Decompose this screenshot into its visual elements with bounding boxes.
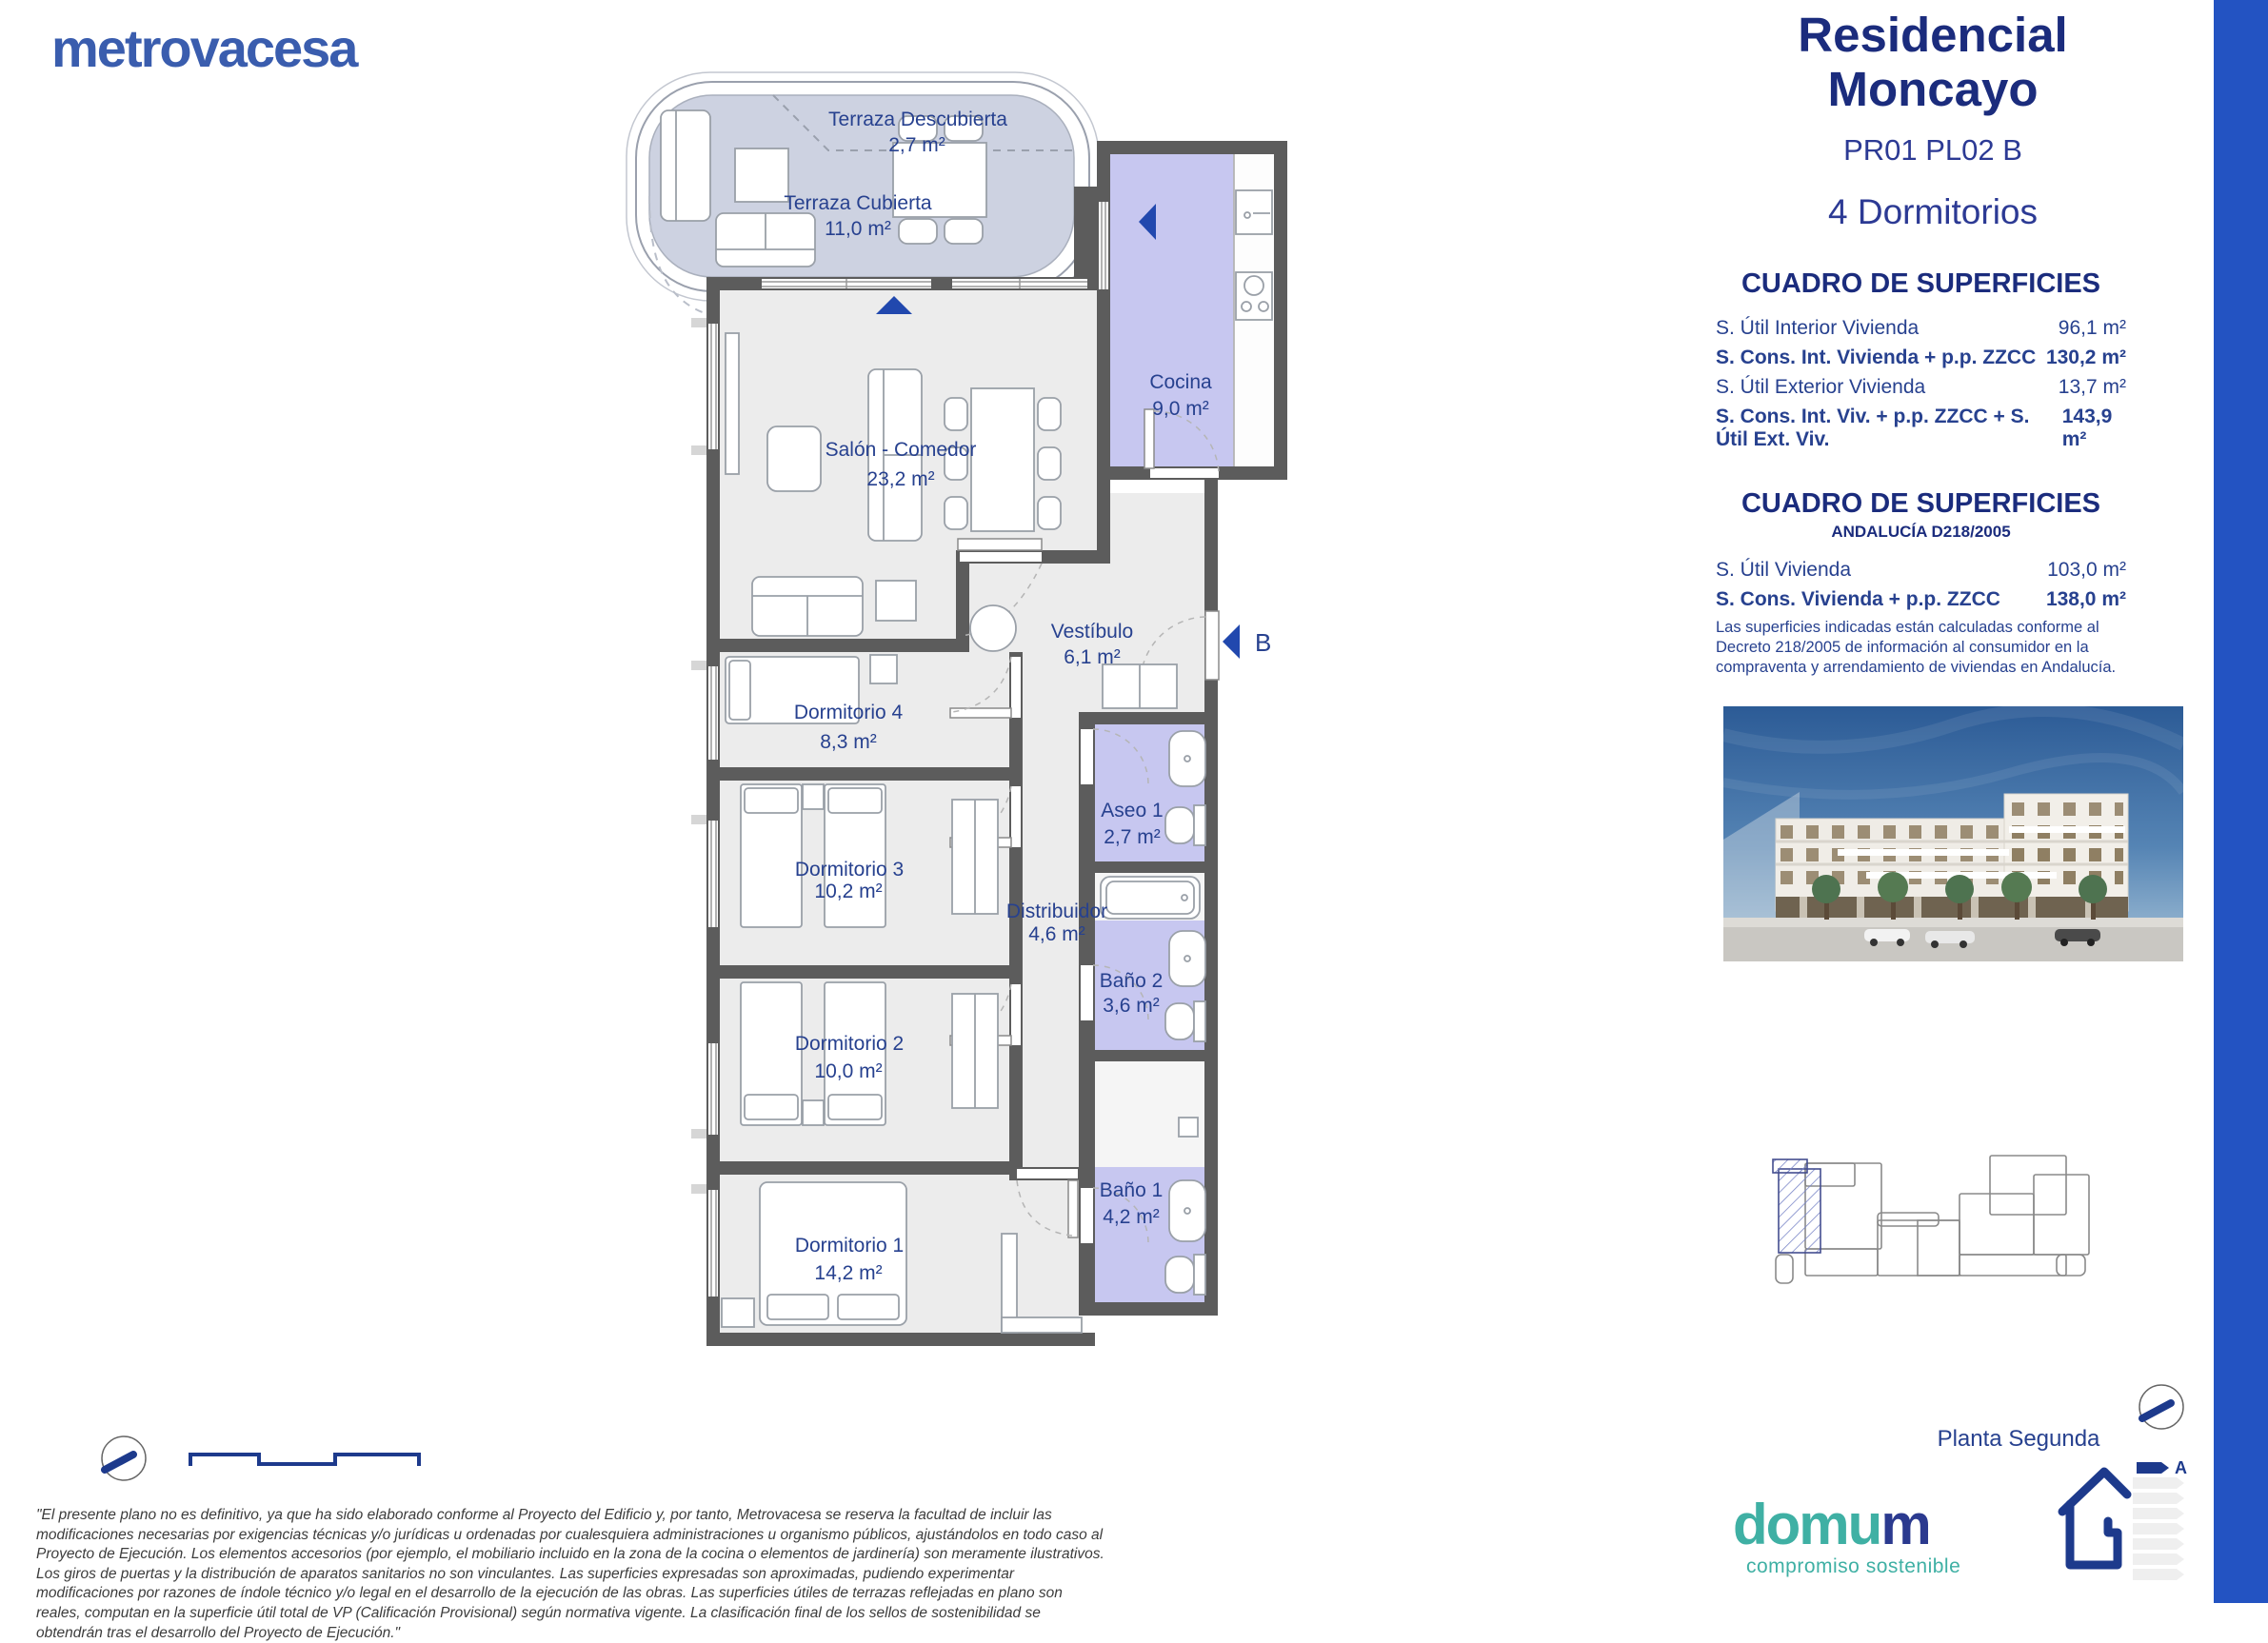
room-label: Cocina xyxy=(1149,371,1212,393)
room-label: Terraza Cubierta xyxy=(784,192,932,214)
energy-rating-arrow xyxy=(2137,1462,2169,1474)
energy-rating-letter: A xyxy=(2175,1460,2187,1477)
pillow xyxy=(828,788,882,813)
kitchen-window xyxy=(1099,202,1108,289)
facade-window xyxy=(691,1043,718,1138)
room-area: 2,7 m² xyxy=(888,134,945,156)
pillow xyxy=(745,1095,798,1119)
room-label: Terraza Descubierta xyxy=(828,109,1007,130)
room-label: Dormitorio 4 xyxy=(794,702,904,723)
closet-partition xyxy=(1002,1317,1082,1333)
terrace-chair xyxy=(899,219,937,244)
toilet-tank xyxy=(1194,1255,1205,1295)
table2-note: Las superficies indicadas están calculad… xyxy=(1716,618,2126,678)
sink xyxy=(1169,931,1205,986)
terrace-chair xyxy=(945,219,983,244)
room-area: 3,6 m² xyxy=(1103,995,1160,1017)
sidewalk xyxy=(1723,918,2183,927)
dining-chair xyxy=(945,497,967,529)
dining-chair xyxy=(1038,497,1061,529)
title-line2: Moncayo xyxy=(1714,62,2152,116)
room-area: 9,0 m² xyxy=(1152,398,1209,420)
keyplan-unit-highlight xyxy=(1773,1159,1820,1253)
room-area: 10,2 m² xyxy=(814,881,882,902)
fridge xyxy=(1236,190,1272,234)
surface-tables: CUADRO DE SUPERFICIES S. Útil Interior V… xyxy=(1716,268,2126,678)
compass-icon xyxy=(2137,1382,2186,1432)
room-area: 4,6 m² xyxy=(1028,923,1085,945)
pillow xyxy=(767,1295,828,1319)
row-label: S. Útil Vivienda xyxy=(1716,559,1851,582)
energy-bars xyxy=(2133,1477,2184,1580)
terrace-slider-window xyxy=(762,279,931,288)
room-area: 4,2 m² xyxy=(1103,1206,1160,1228)
armchair xyxy=(767,426,821,491)
unit-type: 4 Dormitorios xyxy=(1714,192,2152,232)
room-area: 8,3 m² xyxy=(820,731,877,753)
unit-code: PR01 PL02 B xyxy=(1714,133,2152,168)
room-label: Dormitorio 1 xyxy=(795,1235,904,1257)
toilet-tank xyxy=(1194,805,1205,845)
sink xyxy=(1169,731,1205,786)
bath1-entry-strip xyxy=(1095,1061,1204,1167)
table-row: S. Útil Exterior Vivienda 13,7 m² xyxy=(1716,372,2126,402)
page-title: Residencial Moncayo xyxy=(1714,8,2152,116)
hob xyxy=(1236,272,1272,320)
toilet xyxy=(1165,807,1194,843)
room-label: Dormitorio 3 xyxy=(795,859,904,881)
accent-bar xyxy=(2214,0,2268,1603)
row-value: 103,0 m² xyxy=(2047,559,2126,582)
row-label: S. Cons. Int. Vivienda + p.p. ZZCC xyxy=(1716,346,2036,369)
row-label: S. Cons. Vivienda + p.p. ZZCC xyxy=(1716,588,2000,611)
dining-chair xyxy=(945,398,967,430)
table-row: S. Cons. Vivienda + p.p. ZZCC 138,0 m² xyxy=(1716,584,2126,614)
toilet xyxy=(1165,1003,1194,1039)
floor-caption: Planta Segunda xyxy=(1866,1426,2171,1453)
row-value: 130,2 m² xyxy=(2046,346,2126,369)
domum-tagline: compromiso sostenible xyxy=(1746,1555,2019,1578)
dining-chair xyxy=(1038,447,1061,480)
table-row: S. Útil Vivienda 103,0 m² xyxy=(1716,555,2126,584)
terrace-sofa xyxy=(661,110,710,221)
bathtub xyxy=(1101,877,1200,919)
nightstand xyxy=(870,655,897,683)
nightstand xyxy=(803,784,824,809)
legal-disclaimer: "El presente plano no es definitivo, ya … xyxy=(36,1506,1110,1643)
room-label: Aseo 1 xyxy=(1101,800,1163,821)
dining-chair xyxy=(1038,398,1061,430)
panel-header: Residencial Moncayo PR01 PL02 B 4 Dormit… xyxy=(1714,8,2152,232)
room-area: 23,2 m² xyxy=(866,468,934,490)
room-label: Salón - Comedor xyxy=(826,439,977,461)
tv-unit xyxy=(726,333,739,474)
metrovacesa-logo: metrovacesa xyxy=(51,17,356,79)
washer xyxy=(1179,1118,1198,1137)
section-profile-icon xyxy=(187,1445,423,1475)
hall-round-table xyxy=(970,605,1016,651)
terrace-table xyxy=(735,148,788,202)
table-row: S. Cons. Int. Viv. + p.p. ZZCC + S. Útil… xyxy=(1716,402,2126,454)
toilet-tank xyxy=(1194,1001,1205,1041)
table-row: S. Cons. Int. Vivienda + p.p. ZZCC 130,2… xyxy=(1716,343,2126,372)
room-label: Dormitorio 2 xyxy=(795,1033,904,1055)
room-area: 11,0 m² xyxy=(825,218,891,240)
room-label: Baño 1 xyxy=(1100,1179,1164,1201)
row-value: 143,9 m² xyxy=(2062,406,2126,451)
table2-block: CUADRO DE SUPERFICIES ANDALUCÍA D218/200… xyxy=(1716,488,2126,678)
pillow xyxy=(828,1095,882,1119)
floorplan: B Terraza Descubierta 2,7 m² Terraza Cub… xyxy=(590,38,1314,1371)
room-label: Vestíbulo xyxy=(1051,621,1133,643)
terrace-slider-window xyxy=(952,279,1087,288)
entrance-letter: B xyxy=(1255,628,1271,657)
table2: S. Útil Vivienda 103,0 m² S. Cons. Vivie… xyxy=(1716,555,2126,614)
domum-word-navy: m xyxy=(1880,1493,1929,1556)
table2-subtitle: ANDALUCÍA D218/2005 xyxy=(1716,523,2126,542)
building-render-image xyxy=(1723,706,2183,961)
facade-window xyxy=(691,661,718,760)
compass-icon xyxy=(99,1434,149,1483)
domum-word-teal: domu xyxy=(1733,1493,1880,1556)
nightstand xyxy=(803,1100,824,1125)
row-value: 138,0 m² xyxy=(2046,588,2126,611)
title-line1: Residencial xyxy=(1714,8,2152,62)
keyplan-building-outline xyxy=(1776,1156,2089,1283)
row-label: S. Cons. Int. Viv. + p.p. ZZCC + S. Útil… xyxy=(1716,406,2062,451)
domum-wordmark: domum xyxy=(1733,1496,2019,1554)
room-label: Baño 2 xyxy=(1100,970,1164,992)
room-area: 10,0 m² xyxy=(814,1060,882,1082)
dining-table xyxy=(971,388,1034,531)
table1-title: CUADRO DE SUPERFICIES xyxy=(1716,268,2126,300)
row-label: S. Útil Interior Vivienda xyxy=(1716,317,1919,340)
pillow xyxy=(838,1295,899,1319)
pillow xyxy=(745,788,798,813)
row-label: S. Útil Exterior Vivienda xyxy=(1716,376,1925,399)
domum-logo: domum compromiso sostenible xyxy=(1733,1496,2019,1578)
pillow xyxy=(729,661,750,720)
house-outline-icon xyxy=(2062,1472,2127,1565)
sink xyxy=(1169,1180,1205,1241)
room-area: 2,7 m² xyxy=(1104,826,1161,848)
row-value: 13,7 m² xyxy=(2059,376,2126,399)
facade-window xyxy=(691,318,718,455)
toilet xyxy=(1165,1257,1194,1293)
table2-title: CUADRO DE SUPERFICIES xyxy=(1716,488,2126,520)
table-row: S. Útil Interior Vivienda 96,1 m² xyxy=(1716,313,2126,343)
energy-rating-icon: A xyxy=(2045,1460,2188,1590)
keyplan xyxy=(1771,1152,2104,1299)
entrance-arrow-icon xyxy=(1223,624,1240,659)
room-area: 6,1 m² xyxy=(1064,646,1121,668)
room-area: 14,2 m² xyxy=(814,1262,882,1284)
facade-window xyxy=(691,815,718,927)
table1: S. Útil Interior Vivienda 96,1 m² S. Con… xyxy=(1716,313,2126,454)
nightstand xyxy=(722,1298,754,1327)
side-table xyxy=(876,581,916,621)
row-value: 96,1 m² xyxy=(2059,317,2126,340)
facade-window xyxy=(691,1184,718,1297)
room-label: Distribuidor xyxy=(1006,901,1107,922)
